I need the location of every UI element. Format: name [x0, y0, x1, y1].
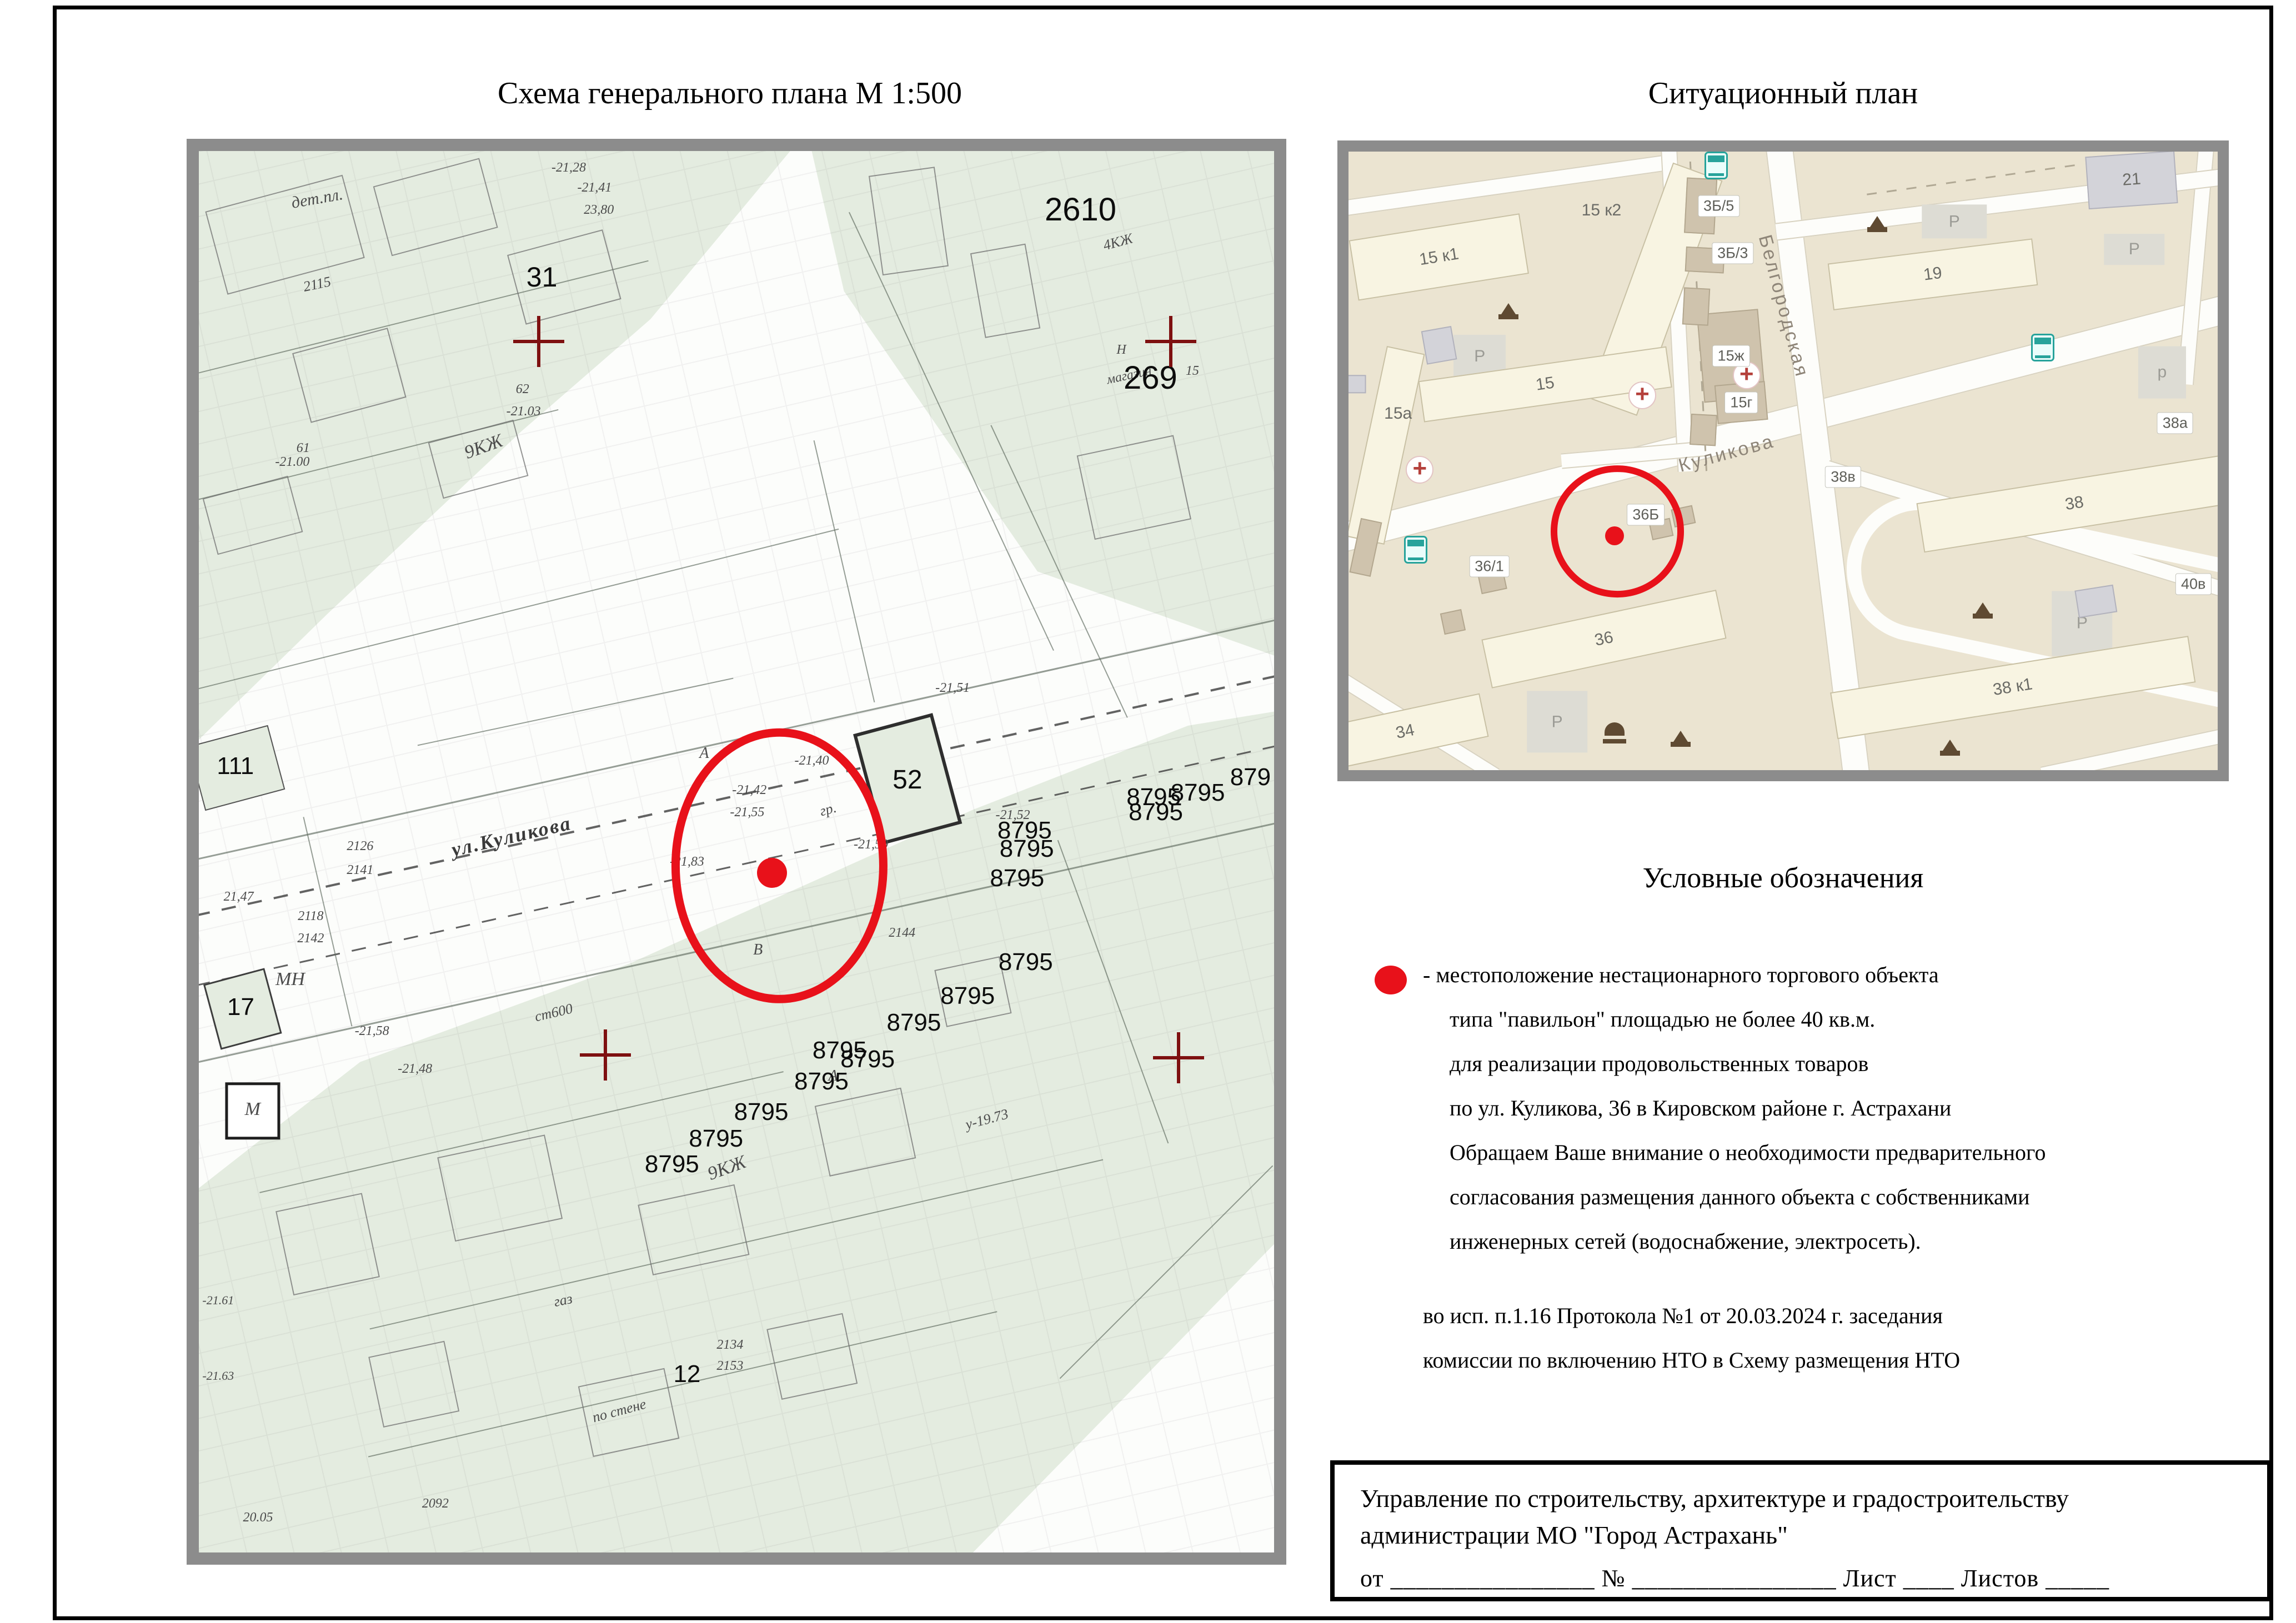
- topo-label: -21,28: [552, 161, 586, 174]
- topo-label: 2126: [347, 840, 373, 853]
- building: 15 к1: [1348, 214, 1529, 302]
- address-pill-label: 40в: [2175, 573, 2211, 595]
- topo-label: -21.63: [202, 1370, 234, 1382]
- parking-area: p: [2138, 346, 2186, 399]
- building-number-label: 36: [1593, 628, 1615, 650]
- building: [1440, 609, 1466, 634]
- building: [1421, 326, 1457, 365]
- title-block-stamp: Управление по строительству, архитектуре…: [1330, 1460, 2272, 1601]
- topo-label: МН: [275, 970, 305, 989]
- building-number-label: 21: [2122, 170, 2142, 190]
- poi-icon: [1937, 732, 1963, 758]
- topo-label: 23,80: [584, 203, 614, 217]
- address-pill-label: 15ж: [1712, 345, 1750, 366]
- building: [1348, 375, 1366, 393]
- legend-line: для реализации продовольственных товаров: [1423, 1042, 2245, 1086]
- parcel-number-label: 52: [893, 767, 922, 793]
- sitplan-map: РРРpРР 15 к1 15 36 34 19 38: [1337, 140, 2229, 781]
- reseau-cross-icon: [580, 1029, 631, 1081]
- parcel-number-label: 8795: [990, 866, 1044, 891]
- topo-label: -21,51: [935, 681, 970, 695]
- poi-icon: [1628, 381, 1656, 409]
- genplan-title: Схема генерального плана М 1:500: [187, 76, 1273, 111]
- building: 19: [1827, 238, 2037, 310]
- parking-area: Р: [1527, 691, 1588, 752]
- legend-line: Обращаем Ваше внимание о необходимости п…: [1423, 1130, 2245, 1175]
- poi-icon: [1668, 723, 1693, 749]
- genplan-canvas: дет.пл.9КЖ9КЖул.Куликова-21,42-21,55-21,…: [199, 151, 1274, 1552]
- sitplan-canvas: РРРpРР 15 к1 15 36 34 19 38: [1348, 152, 2218, 770]
- road: [1348, 153, 1678, 218]
- topo-label: газ: [553, 1291, 574, 1309]
- parcel-number-label: 8795: [886, 1011, 941, 1035]
- protocol-note-line: комиссии по включению НТО в Схему размещ…: [1423, 1338, 2200, 1383]
- building: [1682, 287, 1710, 325]
- reseau-cross-icon: [513, 316, 564, 367]
- parcel-number-label: 8795: [689, 1127, 743, 1151]
- building-outline: [766, 1313, 858, 1399]
- topo-label: -21.00: [275, 455, 309, 469]
- parcel-number-label: 879: [1230, 765, 1271, 790]
- parking-area: Р: [1922, 204, 1987, 238]
- parking-area: Р: [2104, 234, 2165, 265]
- parcel-number-label: 31: [527, 263, 558, 291]
- parcel-number-label: 2610: [1045, 194, 1116, 226]
- poi-icon: [1970, 595, 1996, 621]
- parcel-number-label: 111: [217, 754, 254, 778]
- address-pill-label: 3Б/5: [1698, 195, 1739, 217]
- building-outline: [869, 167, 949, 275]
- topo-label: 2144: [889, 926, 915, 939]
- address-pill-label: 15г: [1724, 392, 1758, 414]
- topo-label: -21,48: [398, 1062, 432, 1076]
- topo-label: 61: [297, 441, 310, 455]
- nto-location-dot: [757, 858, 787, 888]
- parcel-number-label: 8795: [794, 1069, 849, 1094]
- legend-line: - местоположение нестационарного торгово…: [1423, 953, 2245, 997]
- poi-icon: [1864, 209, 1890, 234]
- building: [1690, 414, 1717, 446]
- topo-label: -21.61: [202, 1294, 234, 1307]
- address-pill-label: 3Б/3: [1712, 242, 1753, 264]
- building-number-label: 15 к1: [1418, 245, 1460, 270]
- parcel-number-label: 8795: [813, 1038, 867, 1063]
- stamp-org-line1: Управление по строительству, архитектуре…: [1360, 1480, 2250, 1517]
- building: [2074, 585, 2117, 619]
- reseau-cross-icon: [1153, 1032, 1204, 1083]
- topo-label: А: [699, 746, 709, 761]
- street-name-label: 15а: [1384, 404, 1412, 423]
- parcel-number-label: 8795: [1000, 837, 1054, 861]
- legend-heading: Условные обозначения: [1337, 862, 2229, 895]
- legend-line: инженерных сетей (водоснабжение, электро…: [1423, 1219, 2245, 1264]
- sitplan-title: Ситуационный план: [1337, 76, 2229, 111]
- topo-label: -21,58: [355, 1024, 389, 1038]
- parcel-number-label: 12: [673, 1362, 700, 1386]
- building-number-label: 15: [1535, 374, 1556, 395]
- address-pill-label: 38а: [2157, 413, 2193, 434]
- parcel-number-label: 8795: [1129, 800, 1183, 825]
- topo-label: 20.05: [243, 1511, 273, 1524]
- topo-label: М: [245, 1100, 260, 1119]
- building-number-label: 38: [2064, 493, 2085, 514]
- parcel-number-label: 8795: [645, 1152, 699, 1177]
- building: 21: [2085, 152, 2178, 209]
- address-pill-label: 36/1: [1469, 556, 1510, 577]
- stamp-fields-line: от ________________ № ________________ Л…: [1360, 1560, 2250, 1597]
- topo-label: 2142: [297, 932, 324, 945]
- legend-red-dot-icon: [1375, 966, 1407, 994]
- topo-label: 2092: [422, 1497, 449, 1510]
- topo-label: 2134: [716, 1338, 743, 1351]
- topo-label: -21,41: [577, 181, 611, 194]
- road: [1764, 152, 1872, 770]
- parcel-number-label: 17: [227, 995, 254, 1019]
- poi-icon: [1496, 296, 1521, 321]
- topo-label: 21,47: [224, 890, 254, 903]
- reseau-cross-icon: [1145, 316, 1196, 367]
- genplan-map: дет.пл.9КЖ9КЖул.Куликова-21,42-21,55-21,…: [187, 139, 1286, 1565]
- protocol-note: во исп. п.1.16 Протокола №1 от 20.03.202…: [1423, 1294, 2200, 1383]
- parcel-number-label: 8795: [999, 950, 1053, 974]
- document-page: Схема генерального плана М 1:500 Ситуаци…: [0, 0, 2296, 1623]
- protocol-note-line: во исп. п.1.16 Протокола №1 от 20.03.202…: [1423, 1294, 2200, 1338]
- building-number-label: 38 к1: [1992, 675, 2034, 700]
- topo-label: 2141: [347, 863, 373, 877]
- topo-label: 2118: [298, 910, 323, 923]
- parcel-number-label: 8795: [734, 1100, 789, 1124]
- address-pill-label: 38в: [1825, 466, 1861, 488]
- building-number-label: 19: [1922, 264, 1943, 285]
- legend-line: по ул. Куликова, 36 в Кировском районе г…: [1423, 1086, 2245, 1130]
- building: 36: [1481, 590, 1726, 689]
- road: [2041, 721, 2218, 770]
- topo-label: -21.03: [507, 405, 541, 418]
- parcel-number-label: 8795: [940, 984, 995, 1008]
- nto-location-dot: [1605, 526, 1624, 545]
- legend-line: типа "павильон" площадью не более 40 кв.…: [1423, 997, 2245, 1042]
- building-number-label: 34: [1394, 721, 1416, 743]
- legend-line: согласования размещения данного объекта …: [1423, 1175, 2245, 1219]
- topo-label: 2153: [716, 1359, 743, 1373]
- topo-label: 62: [516, 383, 529, 396]
- poi-icon: [1602, 721, 1627, 747]
- street-name-label: 15 к2: [1582, 201, 1622, 220]
- topo-label: Н: [1116, 343, 1126, 356]
- poi-icon: [1406, 456, 1433, 484]
- poi-icon: [2031, 334, 2054, 361]
- poi-icon: [1705, 152, 1728, 179]
- building-outline: [275, 1193, 380, 1295]
- legend-text: - местоположение нестационарного торгово…: [1423, 953, 2245, 1264]
- stamp-org-line2: администрации МО "Город Астрахань": [1360, 1517, 2250, 1554]
- poi-icon: [1404, 536, 1427, 564]
